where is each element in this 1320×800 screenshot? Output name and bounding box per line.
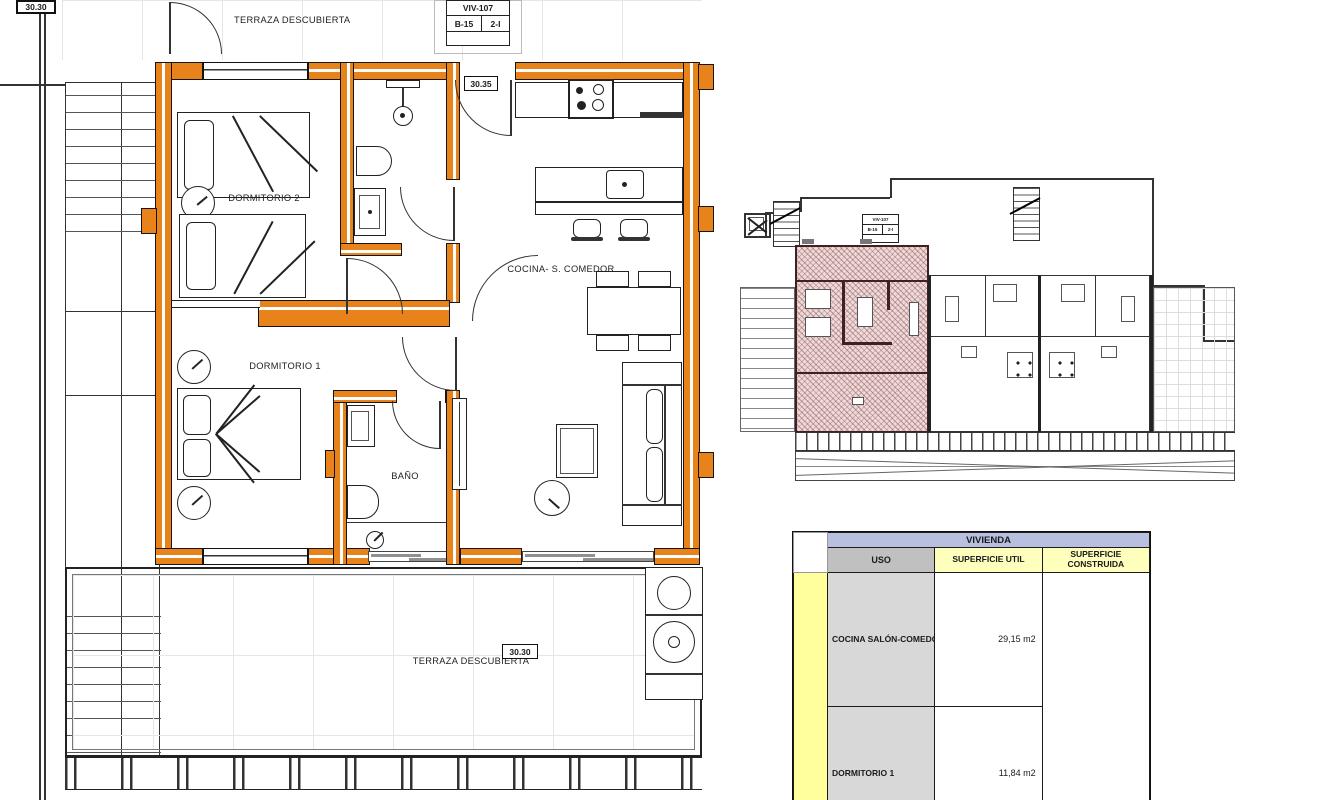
wall	[155, 62, 172, 565]
garden-steps	[740, 287, 795, 432]
vent-box	[802, 239, 814, 244]
wall	[654, 548, 700, 565]
sliding-door-panel	[525, 554, 595, 557]
wall	[308, 62, 450, 80]
unit-wall	[797, 280, 927, 282]
wall	[683, 62, 700, 565]
unit-wall	[842, 342, 892, 345]
sliding-door-panel	[583, 558, 653, 561]
sliding-door-panel	[371, 554, 421, 557]
col-header-util: SUPERFICIE UTIL	[935, 548, 1042, 573]
partition-wall	[172, 300, 260, 308]
burner	[593, 84, 604, 95]
wall	[155, 548, 203, 565]
title-block: VIV-107 B-15 2-I	[446, 0, 510, 46]
boundary-line	[0, 84, 65, 86]
door-arc	[402, 337, 456, 391]
room-label-dormitorio2: DORMITORIO 2	[206, 193, 322, 203]
door-arc	[392, 401, 440, 449]
mini-bed	[805, 289, 831, 309]
table-title: VIVIENDA	[828, 533, 1150, 548]
sink-drain	[622, 182, 627, 187]
bath-toilet	[347, 485, 379, 519]
wall	[333, 390, 397, 403]
dining-chair	[638, 335, 671, 351]
door-leaf	[453, 187, 455, 241]
surface-table-wrapper: VIVIENDA USO SUPERFICIE UTIL SUPERFICIE …	[792, 531, 1151, 800]
pillar	[698, 452, 714, 478]
mini-fixture	[961, 346, 977, 358]
dining-table	[587, 287, 681, 335]
door-leaf	[455, 337, 457, 391]
overview-plan: VIV-107 B-15 2-I	[740, 165, 1240, 485]
door-leaf	[510, 80, 512, 136]
counter-appliance	[640, 112, 683, 118]
roof-outline	[800, 197, 890, 199]
pillow	[186, 222, 216, 290]
unit-wall	[842, 280, 845, 342]
group-label: VIVIENDA 107	[794, 573, 827, 800]
mini-bed	[1061, 284, 1085, 302]
neighbour-unit	[930, 275, 1040, 432]
mini-table	[1121, 296, 1135, 322]
roof-outline	[890, 178, 892, 198]
mini-bed	[993, 284, 1017, 302]
construida-empty-cell	[1042, 573, 1149, 800]
stair-landing-line	[66, 395, 161, 396]
row-util: 29,15 m2	[935, 573, 1042, 707]
pillow	[184, 120, 214, 190]
tv-unit-line	[459, 402, 460, 486]
wall	[460, 548, 522, 565]
terrace-bottom	[65, 567, 702, 757]
laundry-divider	[646, 614, 702, 616]
stairs	[1013, 187, 1040, 241]
unit-line	[1095, 276, 1096, 336]
kitchen-island-ledge	[535, 202, 683, 215]
pillow	[183, 395, 211, 435]
sofa-backrest	[664, 384, 666, 504]
unit-line	[985, 276, 986, 336]
pillar	[141, 208, 157, 234]
mini-fixture	[1101, 346, 1117, 358]
door-leaf	[169, 2, 171, 54]
elevator	[744, 213, 771, 238]
burner	[592, 99, 604, 111]
overview-title-row2: B-15 2-I	[863, 225, 898, 235]
level-marker: 30.30	[16, 0, 56, 14]
pillar	[698, 64, 714, 90]
pillar	[698, 206, 714, 232]
stair-landing-line	[66, 311, 161, 312]
overview-title-type: 2-I	[883, 225, 898, 234]
overview-title-zone: B-15	[863, 225, 883, 234]
unit-terrace-line	[797, 372, 927, 374]
mini-bed	[805, 317, 831, 337]
stove	[568, 79, 614, 119]
wall	[340, 62, 354, 255]
bar-stool-back	[618, 237, 650, 241]
surface-table: VIVIENDA USO SUPERFICIE UTIL SUPERFICIE …	[793, 532, 1150, 800]
floor-plan-sheet: 30.30 TERRAZA DESCUBIERTA VIV-107 B-15 2…	[0, 0, 1320, 800]
door-leaf	[346, 258, 348, 314]
shower-bracket	[386, 80, 420, 88]
pillow	[183, 439, 211, 477]
boundary-line	[44, 10, 46, 800]
neighbour-unit	[1040, 275, 1150, 432]
shower-stem	[402, 88, 404, 108]
laundry-divider	[646, 673, 702, 675]
table-corner-cell	[794, 533, 828, 573]
level-marker-terrace: 30.30	[502, 644, 538, 659]
party-wall	[928, 275, 931, 432]
laundry-column	[645, 567, 703, 700]
room-label-dormitorio1: DORMITORIO 1	[227, 361, 343, 371]
title-block-row2: B-15 2-I	[447, 16, 509, 32]
terrace-tiles	[62, 0, 702, 60]
bar-stool	[620, 219, 648, 238]
boundary-line	[39, 0, 41, 800]
unit-line	[1041, 336, 1149, 337]
floor-lamp	[534, 480, 570, 516]
dining-chair	[596, 335, 629, 351]
row-util: 11,84 m2	[935, 706, 1042, 800]
mini-table	[945, 296, 959, 322]
coffee-table-top	[560, 428, 594, 474]
wall	[515, 62, 700, 80]
overview-railing	[795, 432, 1235, 451]
terrace-tiles	[72, 574, 695, 750]
pillar	[325, 450, 335, 478]
walkway	[795, 451, 1235, 481]
shower-drain	[400, 113, 405, 118]
dining-chair	[638, 271, 671, 287]
shower-screen	[347, 522, 446, 523]
mini-sofa	[909, 302, 919, 336]
overview-title-code: VIV-107	[863, 215, 898, 225]
roof-outline	[800, 197, 802, 212]
row-uso: DORMITORIO 1	[828, 706, 935, 800]
door-arc	[347, 258, 403, 314]
mini-outdoor-kitchen	[1007, 352, 1033, 378]
vent-box	[860, 239, 872, 244]
col-header-construida: SUPERFICIE CONSTRUIDA	[1042, 548, 1149, 573]
roof-outline	[890, 178, 1153, 180]
group-label-cell: VIVIENDA 107	[794, 573, 828, 800]
window	[203, 62, 308, 80]
door-arc	[400, 187, 454, 241]
terrace-railing	[65, 757, 702, 790]
mini-fixture	[852, 397, 864, 405]
door-leaf	[439, 401, 441, 449]
bath-sink-basin	[351, 411, 369, 441]
washing-machine-door	[668, 636, 680, 648]
sofa-cushion	[646, 447, 663, 502]
sofa-armrest	[622, 504, 682, 506]
sink-drain	[368, 210, 372, 214]
sofa-armrest	[622, 384, 682, 386]
highlighted-unit	[795, 245, 929, 433]
title-block-zone: B-15	[447, 16, 482, 31]
mini-table	[857, 297, 873, 327]
dining-chair	[596, 271, 629, 287]
water-heater	[657, 576, 691, 610]
window	[203, 548, 308, 565]
bar-stool-back	[571, 237, 603, 241]
side-terrace	[1153, 287, 1235, 432]
sliding-door	[522, 551, 654, 562]
wall	[446, 243, 460, 303]
title-block-code: VIV-107	[447, 1, 509, 16]
door-arc	[455, 80, 511, 136]
sofa-cushion	[646, 389, 663, 444]
row-uso: COCINA SALÓN-COMEDOR	[828, 573, 935, 707]
room-label-terrace-top: TERRAZA DESCUBIERTA	[234, 15, 349, 25]
unit-line	[931, 336, 1039, 337]
wall	[340, 243, 402, 256]
burner	[576, 87, 583, 94]
mini-outdoor-kitchen	[1049, 352, 1075, 378]
unit-wall	[887, 280, 890, 310]
title-block-type: 2-I	[482, 16, 509, 31]
wall	[333, 390, 347, 565]
col-header-uso: USO	[828, 548, 935, 573]
toilet	[356, 146, 392, 176]
burner	[577, 101, 586, 110]
room-label-bano: BAÑO	[375, 471, 435, 481]
walkway-diagonal	[795, 460, 1235, 476]
bar-stool	[573, 219, 601, 238]
party-wall	[1038, 275, 1041, 432]
